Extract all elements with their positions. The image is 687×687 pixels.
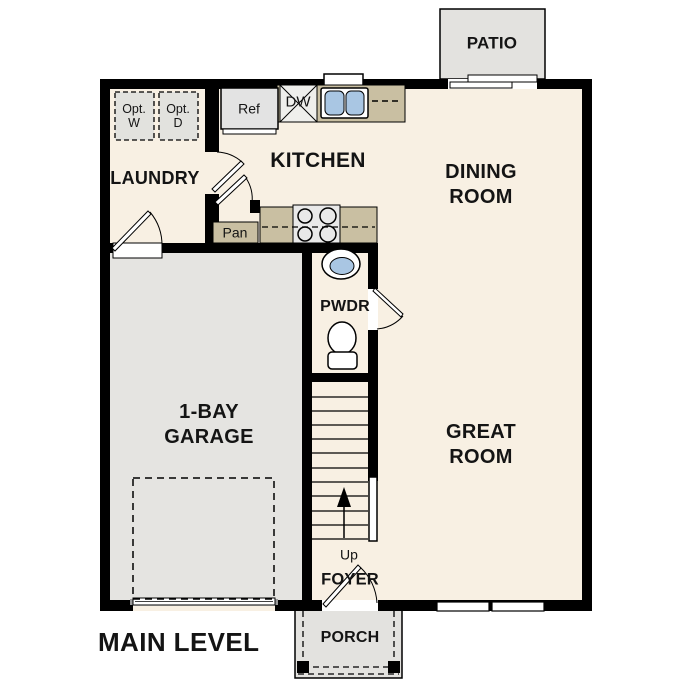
level-title: MAIN LEVEL — [98, 627, 259, 658]
optional-washer-label: Opt. W — [122, 102, 146, 130]
laundry-room-label: LAUNDRY — [110, 167, 199, 190]
refrigerator-label: Ref — [238, 100, 260, 118]
dining-room-label: DINING ROOM — [445, 160, 517, 210]
optional-dryer-label: Opt. D — [166, 102, 190, 130]
powder-sink — [322, 249, 360, 279]
kitchen-sink — [321, 88, 368, 118]
porch-post-left — [297, 661, 309, 673]
dishwasher-label: DW — [286, 94, 311, 113]
powder-room-label: PWDR — [320, 297, 370, 317]
foyer-room-label: FOYER — [321, 570, 379, 591]
stairs-up-label: Up — [340, 546, 358, 564]
kitchen-room-label: KITCHEN — [270, 148, 365, 174]
pantry-label: Pan — [223, 224, 248, 242]
toilet — [328, 322, 357, 369]
porch-post-right — [388, 661, 400, 673]
garage-room-label: 1-BAY GARAGE — [164, 400, 254, 450]
porch-room-label: PORCH — [321, 628, 380, 648]
stair-railing — [369, 477, 377, 541]
floor-plan: PATIO Opt. W Opt. D Ref DW LAUNDRY KITCH… — [0, 0, 687, 687]
great-room-label: GREAT ROOM — [446, 420, 516, 470]
patio-room-label: PATIO — [467, 32, 517, 53]
